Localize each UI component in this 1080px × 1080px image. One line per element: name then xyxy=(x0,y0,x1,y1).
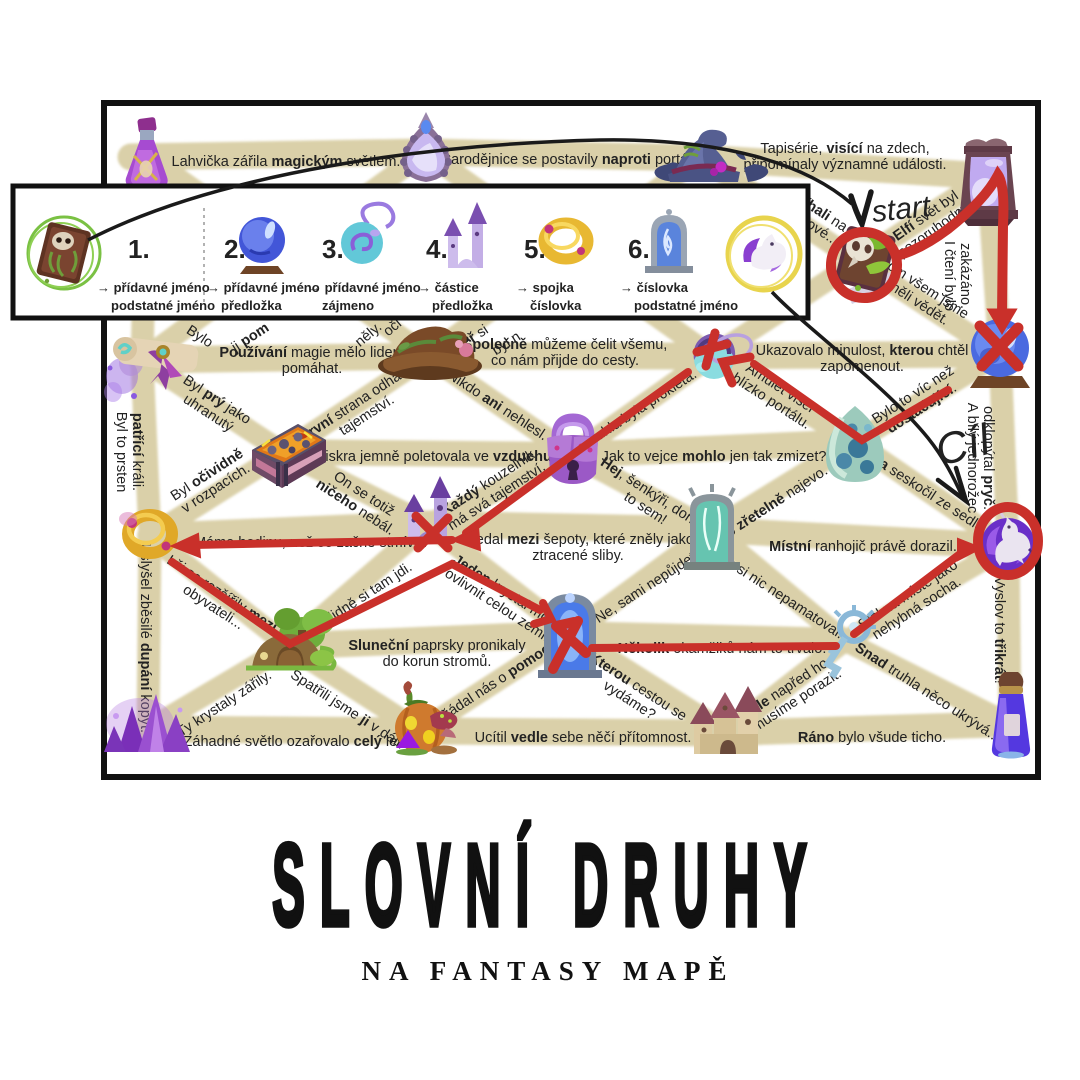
svg-text:Sluneční paprsky pronikaly: Sluneční paprsky pronikaly xyxy=(348,638,526,654)
svg-text:4.: 4. xyxy=(426,234,448,264)
svg-text:Místní ranhojič právě dorazil.: Místní ranhojič právě dorazil. xyxy=(769,539,957,555)
svg-text:předložka: předložka xyxy=(221,298,282,313)
svg-text:zakázáno.: zakázáno. xyxy=(957,243,973,309)
svg-text:3.: 3. xyxy=(322,234,344,264)
svg-text:podstatné jméno: podstatné jméno xyxy=(111,298,215,313)
svg-text:Ucítil vedle sebe něčí přítomn: Ucítil vedle sebe něčí přítomnost. xyxy=(475,730,692,746)
svg-text:ztracené sliby.: ztracené sliby. xyxy=(532,548,624,564)
svg-text:připomínaly významné události.: připomínaly významné události. xyxy=(743,157,946,173)
svg-text:patřící králi.: patřící králi. xyxy=(129,413,145,491)
svg-text:6.: 6. xyxy=(628,234,650,264)
svg-text:Vyslov to třikrát!: Vyslov to třikrát! xyxy=(991,576,1007,683)
svg-text:→ přídavné jméno: → přídavné jméno xyxy=(308,280,421,295)
svg-text:číslovka: číslovka xyxy=(530,298,582,313)
svg-text:1.: 1. xyxy=(128,234,150,264)
svg-text:Ukazovalo minulost, kterou cht: Ukazovalo minulost, kterou chtěl xyxy=(756,343,969,359)
svg-text:pomáhat.: pomáhat. xyxy=(282,361,342,377)
svg-text:Lahvička zářila magickým světl: Lahvička zářila magickým světlem. xyxy=(172,154,401,170)
svg-text:do korun stromů.: do korun stromů. xyxy=(383,654,492,670)
svg-text:2.: 2. xyxy=(224,234,246,264)
svg-text:Jak to vejce mohlo jen tak zmi: Jak to vejce mohlo jen tak zmizet? xyxy=(602,449,827,465)
svg-text:Hledal mezi šepoty, které zněl: Hledal mezi šepoty, které zněly jako xyxy=(462,532,694,548)
svg-text:zájmeno: zájmeno xyxy=(322,298,374,313)
svg-text:start: start xyxy=(870,190,933,229)
svg-text:Byl to prsten: Byl to prsten xyxy=(113,412,129,493)
svg-text:Tapisérie, visící na zdech,: Tapisérie, visící na zdech, xyxy=(760,141,929,157)
svg-text:→ částice: → částice xyxy=(418,280,479,295)
svg-text:Ráno bylo všude ticho.: Ráno bylo všude ticho. xyxy=(798,730,946,746)
svg-text:co nám přijde do cesty.: co nám přijde do cesty. xyxy=(491,353,639,369)
svg-text:5.: 5. xyxy=(524,234,546,264)
svg-text:→ číslovka: → číslovka xyxy=(620,280,689,295)
svg-text:předložka: předložka xyxy=(432,298,493,313)
svg-text:→ přídavné jméno: → přídavné jméno xyxy=(97,280,210,295)
svg-text:podstatné jméno: podstatné jméno xyxy=(634,298,738,313)
svg-text:→ spojka: → spojka xyxy=(516,280,575,295)
svg-text:→ přídavné jméno: → přídavné jméno xyxy=(207,280,320,295)
